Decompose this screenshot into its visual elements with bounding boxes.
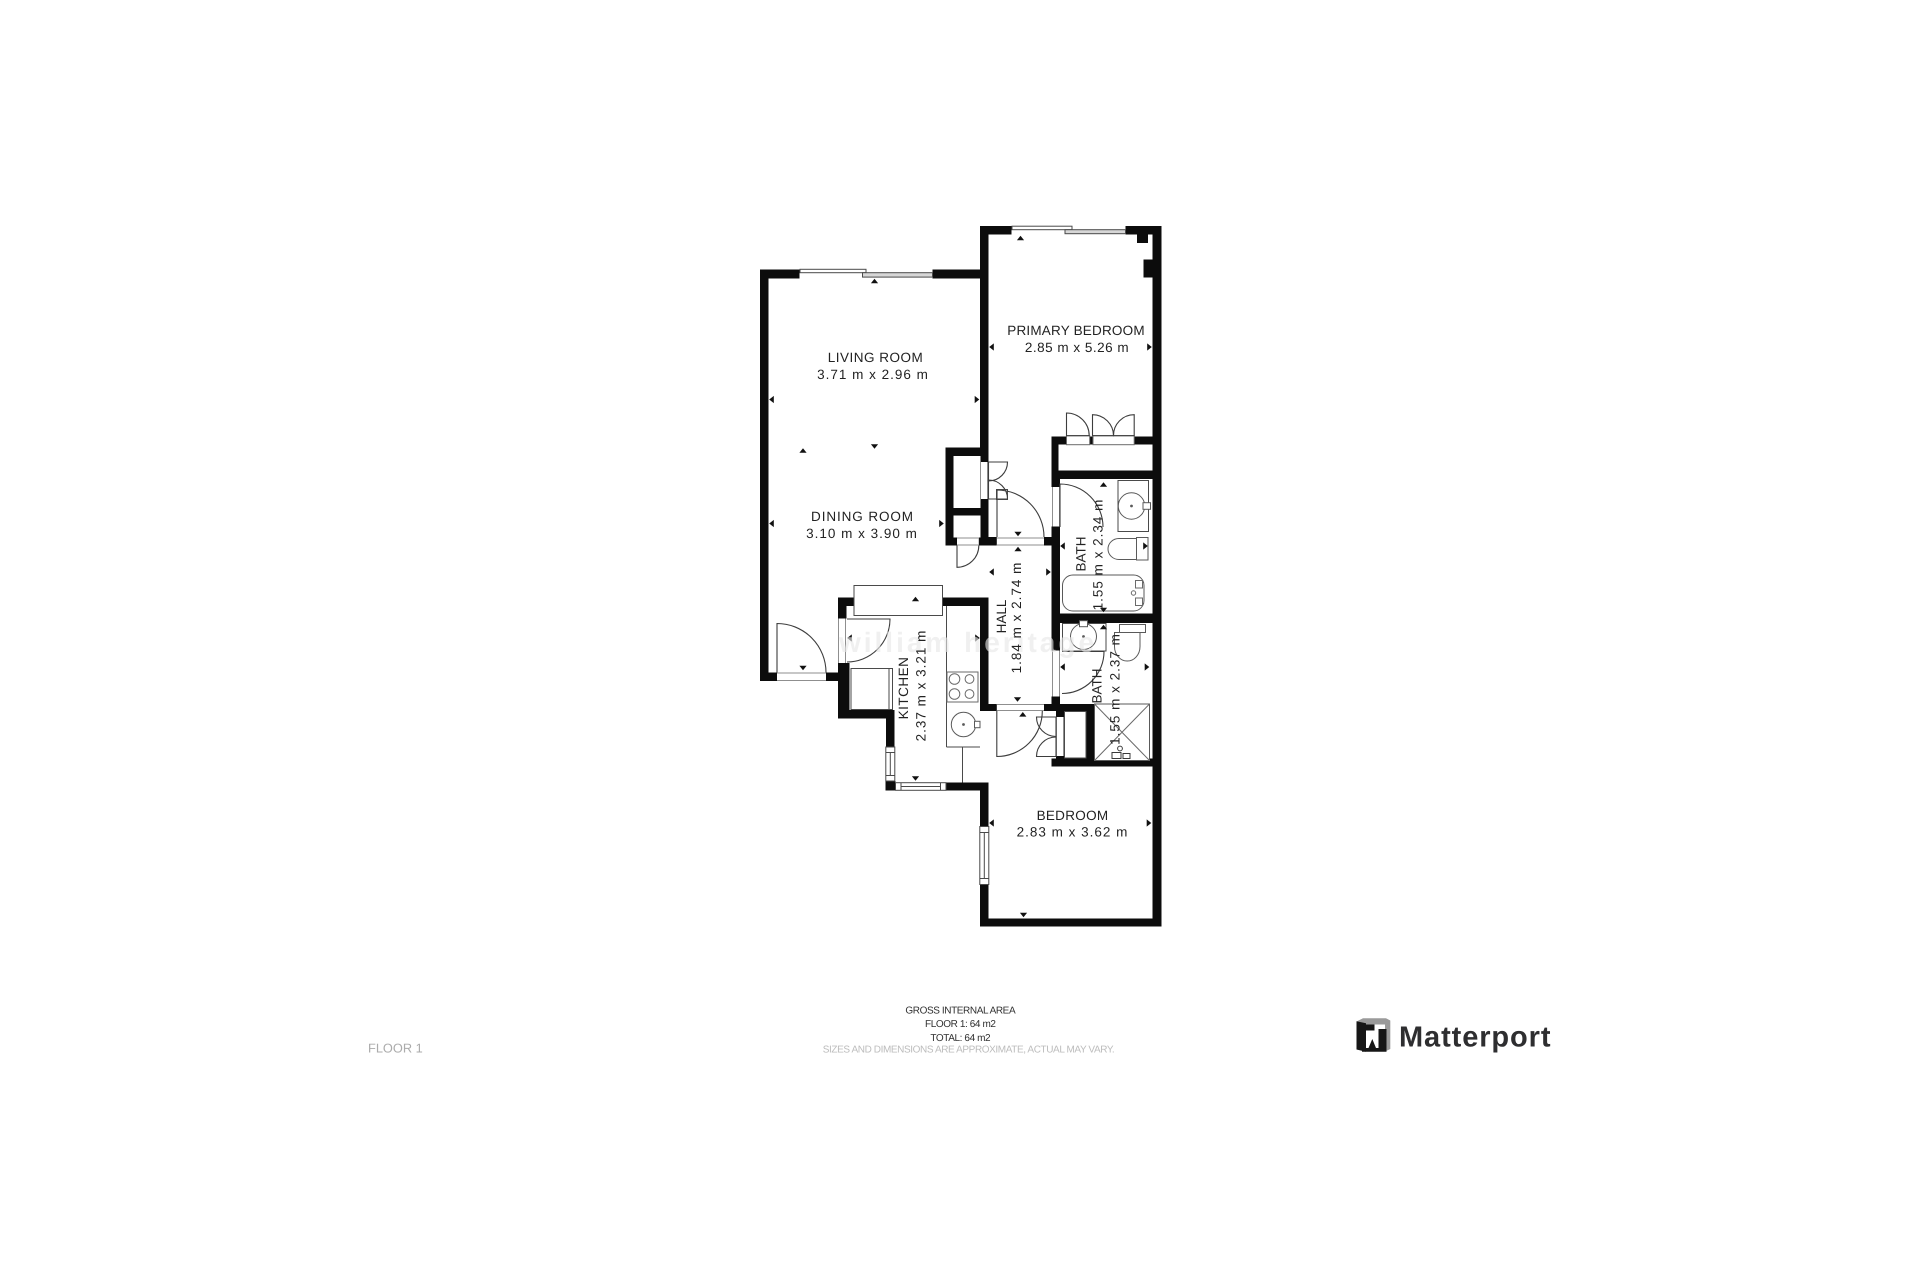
svg-text:2.83 m x 3.62 m: 2.83 m x 3.62 m bbox=[1017, 825, 1129, 840]
svg-text:LIVING ROOM: LIVING ROOM bbox=[828, 350, 924, 365]
svg-text:1.84 m x 2.74 m: 1.84 m x 2.74 m bbox=[1009, 562, 1024, 674]
svg-text:william heritage: william heritage bbox=[838, 627, 1097, 658]
svg-text:3.10 m x 3.90 m: 3.10 m x 3.90 m bbox=[806, 526, 918, 541]
svg-text:TOTAL: 64 m2: TOTAL: 64 m2 bbox=[930, 1033, 991, 1044]
svg-text:BEDROOM: BEDROOM bbox=[1037, 808, 1109, 823]
svg-text:Matterport: Matterport bbox=[1399, 1022, 1551, 1054]
svg-text:2.85 m x 5.26 m: 2.85 m x 5.26 m bbox=[1025, 340, 1129, 355]
svg-text:HALL: HALL bbox=[994, 599, 1009, 633]
svg-text:PRIMARY BEDROOM: PRIMARY BEDROOM bbox=[1007, 323, 1145, 338]
svg-text:SIZES AND DIMENSIONS ARE APPRO: SIZES AND DIMENSIONS ARE APPROXIMATE, AC… bbox=[823, 1044, 1114, 1055]
svg-text:BATH: BATH bbox=[1074, 536, 1089, 571]
svg-text:2.37 m x 3.21 m: 2.37 m x 3.21 m bbox=[914, 630, 929, 742]
svg-text:FLOOR 1: FLOOR 1 bbox=[368, 1041, 423, 1056]
svg-text:1.55 m x 2.37 m: 1.55 m x 2.37 m bbox=[1108, 633, 1123, 745]
svg-text:FLOOR 1: 64 m2: FLOOR 1: 64 m2 bbox=[925, 1019, 996, 1030]
svg-text:BATH: BATH bbox=[1090, 668, 1105, 703]
svg-text:1.55 m x 2.34 m: 1.55 m x 2.34 m bbox=[1091, 499, 1106, 611]
svg-text:GROSS INTERNAL AREA: GROSS INTERNAL AREA bbox=[905, 1006, 1016, 1017]
svg-text:3.71 m x 2.96 m: 3.71 m x 2.96 m bbox=[817, 367, 929, 382]
svg-text:DINING ROOM: DINING ROOM bbox=[811, 509, 914, 524]
svg-text:KITCHEN: KITCHEN bbox=[896, 657, 911, 720]
